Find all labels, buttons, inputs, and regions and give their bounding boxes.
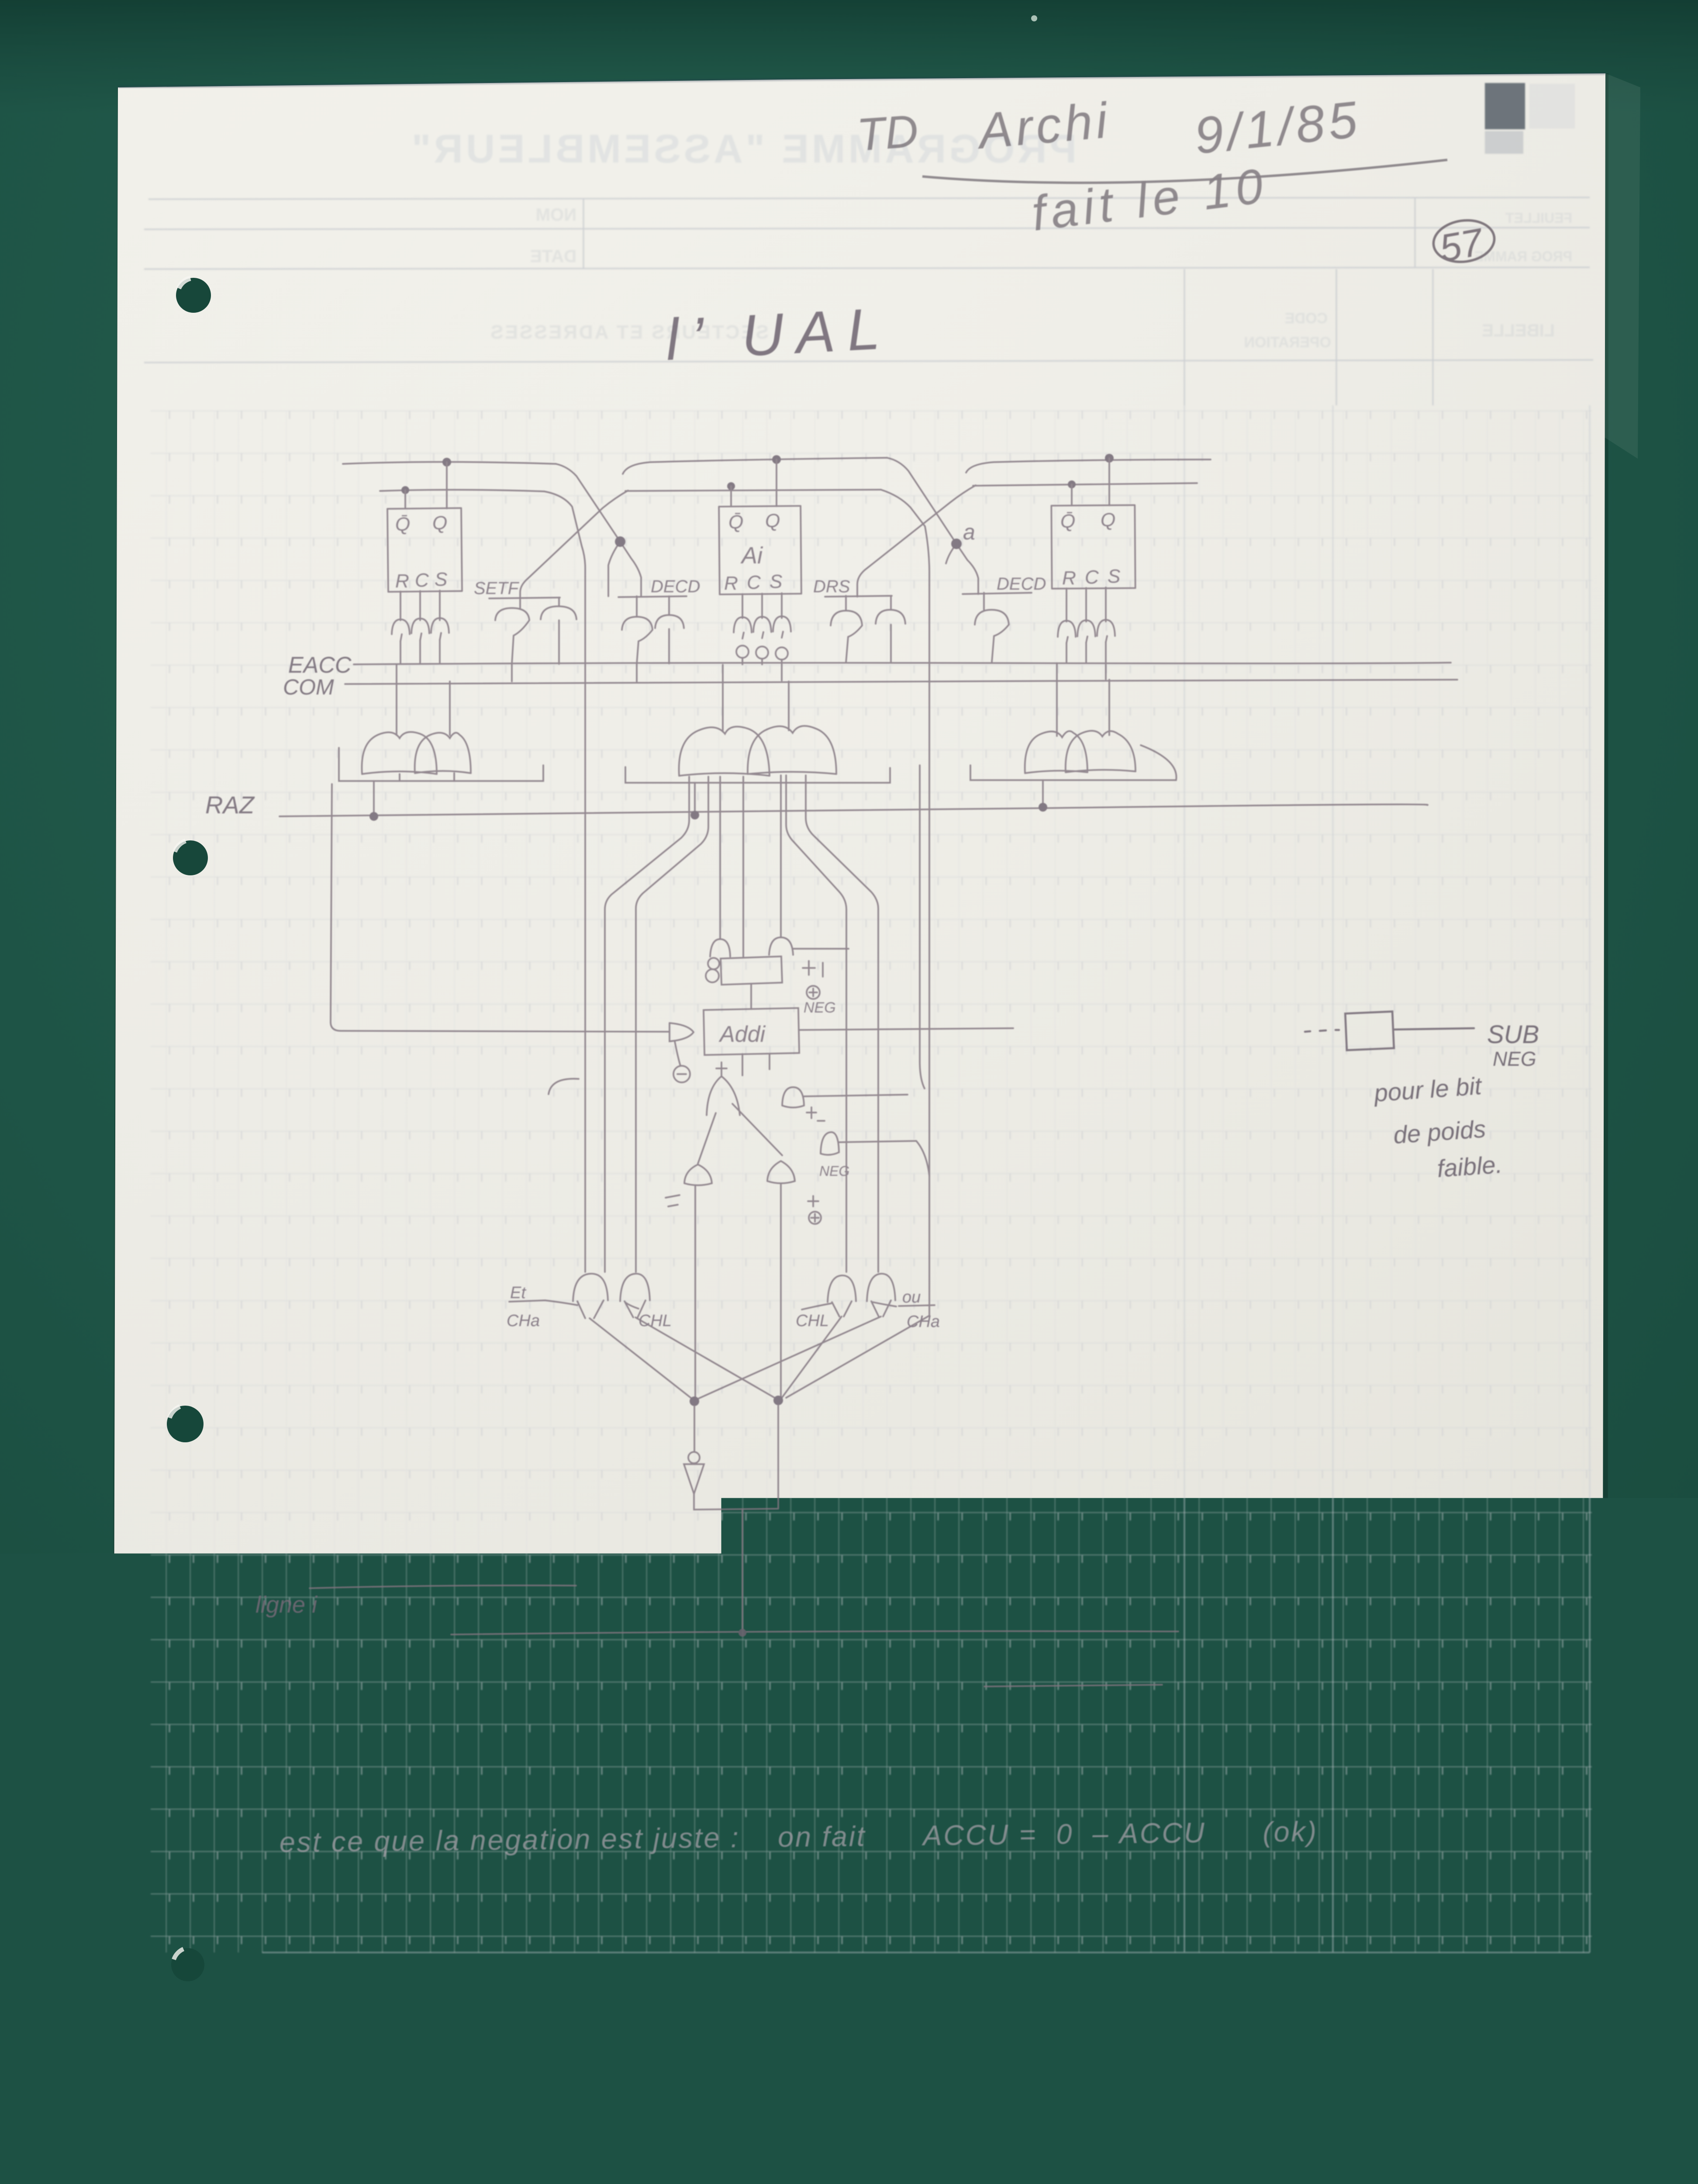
svg-text:EACC: EACC bbox=[288, 653, 352, 678]
svg-text:SUB: SUB bbox=[1487, 1020, 1539, 1049]
svg-text:COM: COM bbox=[283, 675, 334, 699]
svg-text:57: 57 bbox=[1436, 220, 1487, 270]
svg-text:CHL: CHL bbox=[638, 1312, 672, 1330]
svg-text:Et: Et bbox=[510, 1284, 526, 1302]
svg-text:NOM: NOM bbox=[536, 205, 576, 225]
svg-text:FEUILLET: FEUILLET bbox=[1505, 210, 1572, 226]
svg-text:ligne i: ligne i bbox=[255, 1592, 318, 1618]
svg-text:TD: TD bbox=[855, 105, 920, 160]
svg-text:R: R bbox=[724, 573, 738, 594]
svg-text:C: C bbox=[747, 572, 761, 593]
svg-text:DECD: DECD bbox=[651, 577, 700, 596]
svg-text:ou: ou bbox=[902, 1288, 921, 1306]
svg-text:l’ UAL: l’ UAL bbox=[664, 296, 894, 373]
svg-text:C: C bbox=[1085, 567, 1099, 588]
svg-text:C: C bbox=[415, 570, 429, 591]
svg-text:NEG: NEG bbox=[819, 1163, 849, 1179]
svg-text:Q̄: Q̄ bbox=[395, 514, 410, 535]
svg-text:NEG: NEG bbox=[1493, 1047, 1536, 1070]
svg-text:CHL: CHL bbox=[796, 1312, 829, 1330]
svg-text:Addi: Addi bbox=[718, 1022, 766, 1047]
svg-text:Archi: Archi bbox=[974, 92, 1113, 159]
svg-text:R: R bbox=[395, 570, 409, 592]
svg-text:DECD: DECD bbox=[997, 574, 1046, 594]
svg-text:DRS: DRS bbox=[813, 577, 850, 596]
svg-text:R: R bbox=[1062, 567, 1076, 589]
svg-text:S: S bbox=[435, 569, 447, 590]
svg-text:Ai: Ai bbox=[740, 543, 763, 569]
svg-text:NEG: NEG bbox=[804, 999, 836, 1016]
svg-text:CHa: CHa bbox=[907, 1313, 940, 1331]
svg-text:Q: Q bbox=[1101, 509, 1115, 531]
svg-text:S: S bbox=[1108, 566, 1120, 587]
svg-text:S: S bbox=[770, 571, 782, 592]
svg-text:PROGRAMME "ASSEMBLEUR": PROGRAMME "ASSEMBLEUR" bbox=[409, 127, 1077, 171]
svg-text:CHa: CHa bbox=[507, 1312, 540, 1330]
svg-text:SETF: SETF bbox=[474, 579, 520, 598]
svg-text:OPERATION: OPERATION bbox=[1244, 334, 1331, 351]
svg-text:RAZ: RAZ bbox=[205, 791, 255, 819]
svg-text:LIBELLE: LIBELLE bbox=[1482, 321, 1555, 340]
svg-text:CODE: CODE bbox=[1285, 310, 1328, 327]
svg-text:a: a bbox=[963, 520, 975, 544]
svg-text:Q̄: Q̄ bbox=[1060, 511, 1075, 532]
svg-text:faible.: faible. bbox=[1436, 1151, 1503, 1182]
svg-text:Q̄: Q̄ bbox=[728, 511, 743, 533]
svg-text:Q: Q bbox=[765, 510, 780, 532]
svg-text:DATE: DATE bbox=[530, 247, 576, 266]
svg-text:Q: Q bbox=[432, 512, 447, 534]
